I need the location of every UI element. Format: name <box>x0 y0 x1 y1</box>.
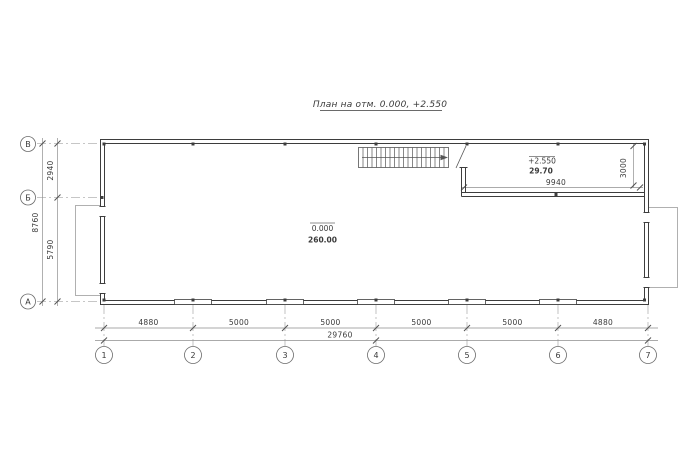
plan-title: План на отм. 0.000, +2.550 <box>313 100 447 110</box>
room-annotations: +2.550 29.70 0.000 260.00 <box>308 157 556 245</box>
axis-grid-lines <box>37 144 648 347</box>
dim-label: 4880 <box>593 318 613 327</box>
column-axis-bubbles: 1 2 3 4 5 6 7 <box>96 347 657 364</box>
stair-break-line <box>456 146 466 168</box>
dim-label: 4880 <box>138 318 158 327</box>
axis-bubble-label: В <box>25 140 31 149</box>
left-platform <box>76 206 101 296</box>
dimension-lines <box>43 138 659 341</box>
dim-label-total: 8760 <box>31 212 40 232</box>
exterior-platforms <box>76 206 678 296</box>
axis-bubble-label: 6 <box>555 351 560 360</box>
axis-bubble-label: 2 <box>190 351 195 360</box>
door-gap-left-2 <box>100 284 106 293</box>
exterior-walls <box>101 140 649 305</box>
wall-outer-face <box>101 140 649 305</box>
mezzanine-elevation: +2.550 <box>528 157 556 166</box>
main-hall-elevation: 0.000 <box>312 224 334 233</box>
dim-label: 5000 <box>320 318 340 327</box>
mezzanine-area: 29.70 <box>529 167 553 176</box>
dim-label: 5000 <box>411 318 431 327</box>
wall-inner-face <box>105 144 645 301</box>
dim-label: 2940 <box>46 160 55 180</box>
column-markers <box>101 143 647 302</box>
main-hall-area: 260.00 <box>308 236 337 245</box>
door-gap-right-2 <box>644 278 650 287</box>
mezzanine-depth-label: 3000 <box>619 158 628 178</box>
dimension-ticks <box>40 141 652 344</box>
axis-bubble-label: 5 <box>464 351 469 360</box>
axis-bubble-label: 3 <box>282 351 287 360</box>
axis-bubble-label: Б <box>25 194 31 203</box>
axis-bubble-label: А <box>25 298 31 307</box>
bottom-dimension-lines <box>95 328 658 341</box>
staircase <box>359 146 467 168</box>
dim-label: 5000 <box>229 318 249 327</box>
axis-bubble-label: 4 <box>373 351 378 360</box>
drawing-sheet: План на отм. 0.000, +2.550 <box>0 0 700 474</box>
door-gap-right-1 <box>644 213 650 222</box>
axis-bubble-label: 1 <box>101 351 106 360</box>
axis-bubble-label: 7 <box>645 351 650 360</box>
left-dimension-labels: 2940 5790 8760 <box>31 160 55 259</box>
door-openings <box>100 207 650 294</box>
door-jamb-caps <box>100 207 650 294</box>
door-gap-left-1 <box>100 207 106 216</box>
right-platform <box>649 208 678 288</box>
dim-label-total: 29760 <box>327 331 352 340</box>
dim-label: 5790 <box>46 239 55 259</box>
dim-label: 5000 <box>502 318 522 327</box>
floor-plan-canvas: План на отм. 0.000, +2.550 <box>0 0 700 474</box>
mezzanine-width-label: 9940 <box>546 178 566 187</box>
